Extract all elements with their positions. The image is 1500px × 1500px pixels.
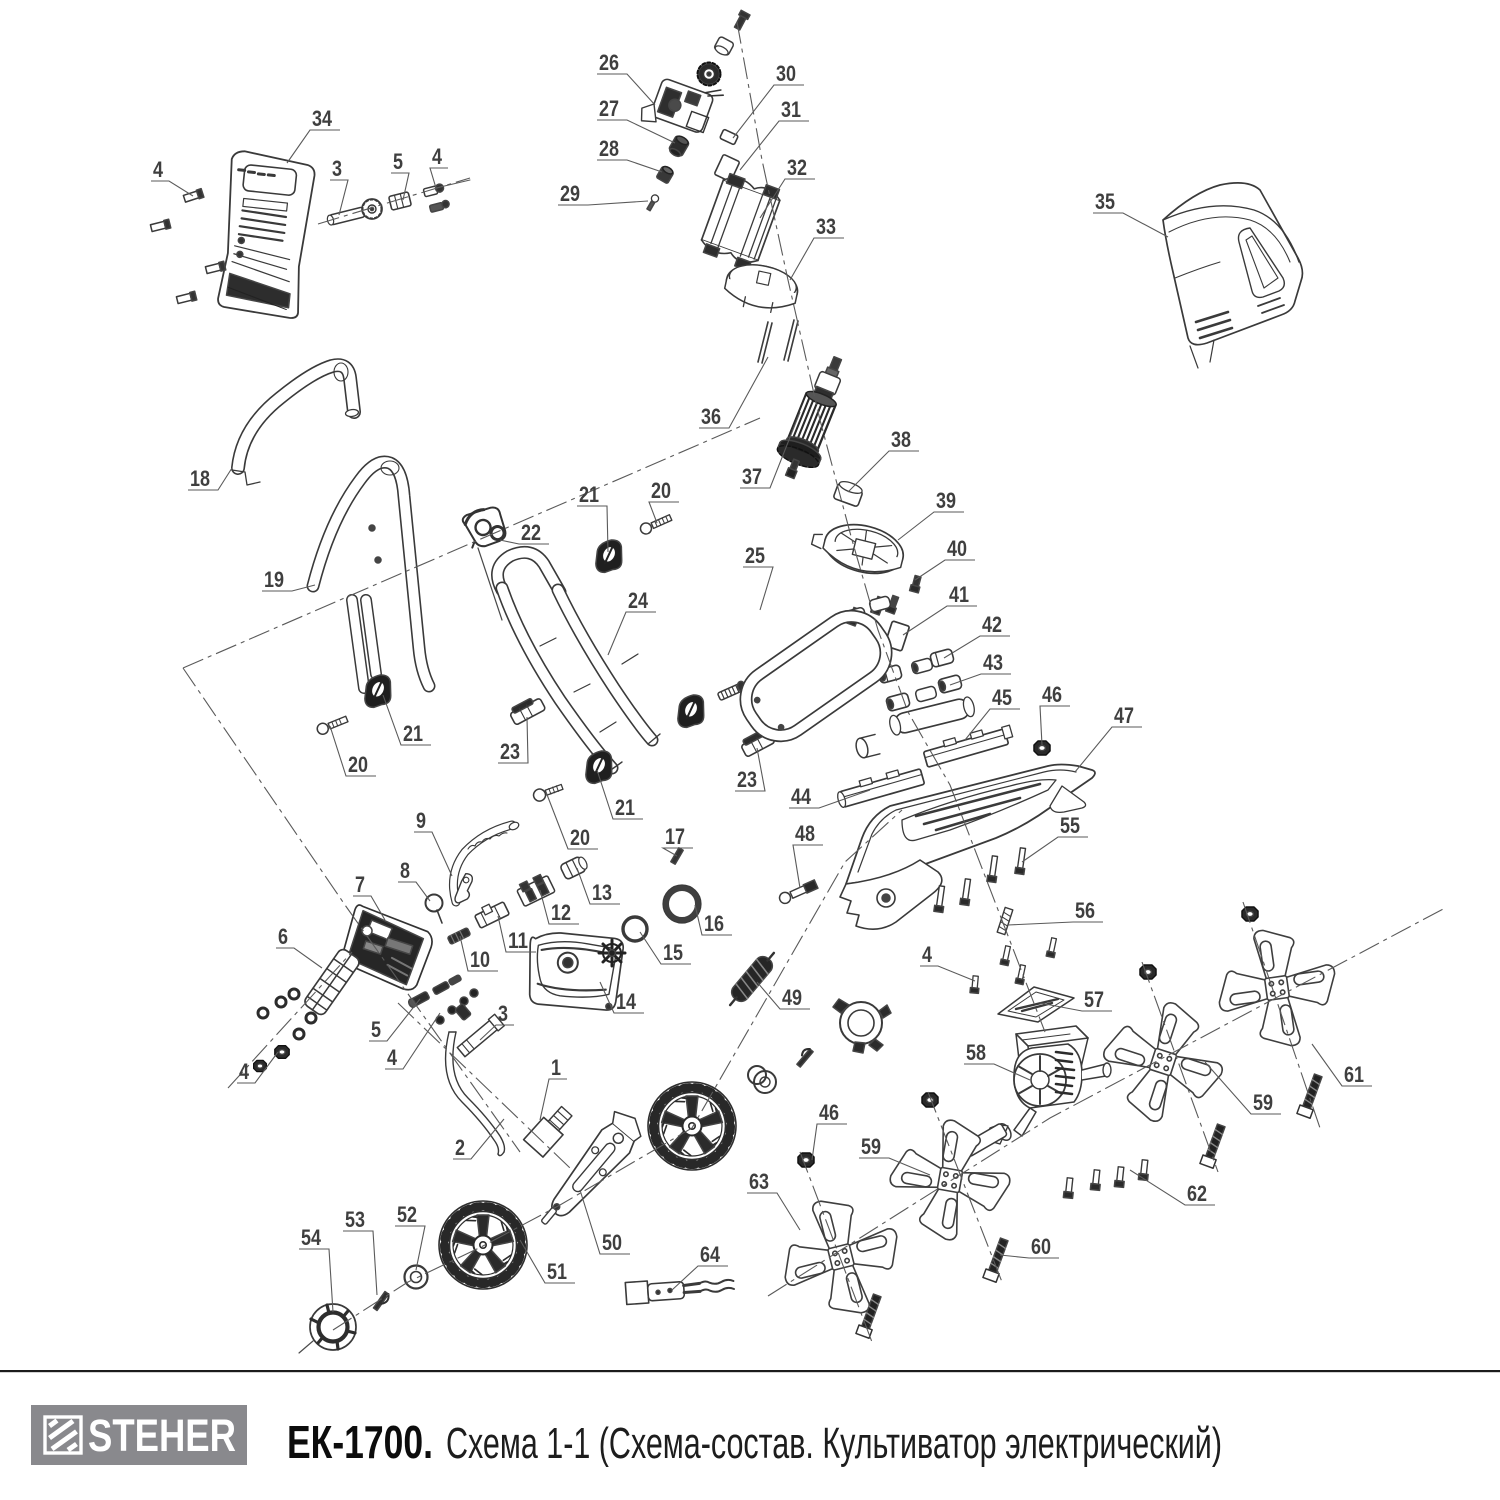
svg-text:51: 51 (547, 1259, 567, 1284)
svg-text:33: 33 (816, 214, 836, 239)
svg-text:11: 11 (508, 928, 528, 953)
svg-text:57: 57 (1084, 987, 1104, 1012)
svg-text:25: 25 (745, 543, 765, 568)
svg-text:53: 53 (345, 1207, 365, 1232)
svg-text:42: 42 (982, 612, 1002, 637)
svg-text:58: 58 (966, 1040, 986, 1065)
svg-text:10: 10 (470, 947, 490, 972)
svg-text:20: 20 (348, 752, 368, 777)
svg-text:34: 34 (312, 106, 332, 131)
svg-text:20: 20 (570, 825, 590, 850)
svg-text:21: 21 (615, 795, 635, 820)
svg-text:23: 23 (737, 767, 757, 792)
svg-text:18: 18 (190, 466, 210, 491)
svg-text:STEHER: STEHER (88, 1410, 236, 1461)
svg-text:46: 46 (1042, 682, 1062, 707)
svg-text:7: 7 (355, 872, 365, 897)
svg-text:4: 4 (432, 144, 442, 169)
svg-text:3: 3 (332, 156, 342, 181)
svg-text:4: 4 (239, 1059, 249, 1084)
svg-text:4: 4 (153, 157, 163, 182)
svg-text:22: 22 (521, 520, 541, 545)
svg-text:12: 12 (551, 900, 571, 925)
svg-text:15: 15 (663, 940, 683, 965)
svg-text:40: 40 (947, 536, 967, 561)
svg-text:35: 35 (1095, 189, 1115, 214)
svg-text:5: 5 (393, 149, 403, 174)
svg-text:60: 60 (1031, 1234, 1051, 1259)
svg-text:21: 21 (579, 482, 599, 507)
svg-text:63: 63 (749, 1169, 769, 1194)
svg-text:59: 59 (1253, 1090, 1273, 1115)
svg-text:30: 30 (776, 61, 796, 86)
svg-text:6: 6 (278, 924, 288, 949)
svg-text:64: 64 (700, 1242, 720, 1267)
svg-text:56: 56 (1075, 898, 1095, 923)
svg-text:36: 36 (701, 404, 721, 429)
svg-text:20: 20 (651, 478, 671, 503)
svg-text:59: 59 (861, 1134, 881, 1159)
svg-text:47: 47 (1114, 703, 1134, 728)
svg-text:49: 49 (782, 985, 802, 1010)
svg-text:44: 44 (791, 784, 811, 809)
svg-text:ЕК-1700.Схема 1-1 (Схема-соста: ЕК-1700.Схема 1-1 (Схема-состав. Культив… (287, 1416, 1222, 1468)
svg-text:4: 4 (922, 942, 932, 967)
svg-text:29: 29 (560, 181, 580, 206)
svg-text:55: 55 (1060, 813, 1080, 838)
svg-text:61: 61 (1344, 1062, 1364, 1087)
svg-text:9: 9 (416, 808, 426, 833)
svg-text:54: 54 (301, 1225, 321, 1250)
svg-text:28: 28 (599, 136, 619, 161)
svg-text:4: 4 (387, 1045, 397, 1070)
svg-text:50: 50 (602, 1230, 622, 1255)
svg-text:32: 32 (787, 155, 807, 180)
svg-text:41: 41 (949, 582, 969, 607)
svg-text:43: 43 (983, 650, 1003, 675)
svg-text:2: 2 (455, 1135, 465, 1160)
svg-text:14: 14 (616, 989, 636, 1014)
svg-text:27: 27 (599, 96, 619, 121)
svg-text:39: 39 (936, 488, 956, 513)
svg-text:16: 16 (704, 911, 724, 936)
svg-text:23: 23 (500, 739, 520, 764)
svg-text:31: 31 (781, 97, 801, 122)
svg-text:62: 62 (1187, 1181, 1207, 1206)
svg-text:45: 45 (992, 685, 1012, 710)
svg-text:3: 3 (498, 1001, 508, 1026)
svg-text:13: 13 (592, 880, 612, 905)
svg-text:1: 1 (551, 1055, 561, 1080)
svg-text:46: 46 (819, 1100, 839, 1125)
svg-text:52: 52 (397, 1202, 417, 1227)
svg-text:17: 17 (665, 824, 685, 849)
svg-text:26: 26 (599, 50, 619, 75)
svg-text:21: 21 (403, 721, 423, 746)
svg-text:19: 19 (264, 567, 284, 592)
svg-text:37: 37 (742, 464, 762, 489)
svg-text:48: 48 (795, 821, 815, 846)
svg-text:5: 5 (371, 1017, 381, 1042)
svg-text:38: 38 (891, 427, 911, 452)
svg-text:24: 24 (628, 588, 648, 613)
svg-text:8: 8 (400, 858, 410, 883)
